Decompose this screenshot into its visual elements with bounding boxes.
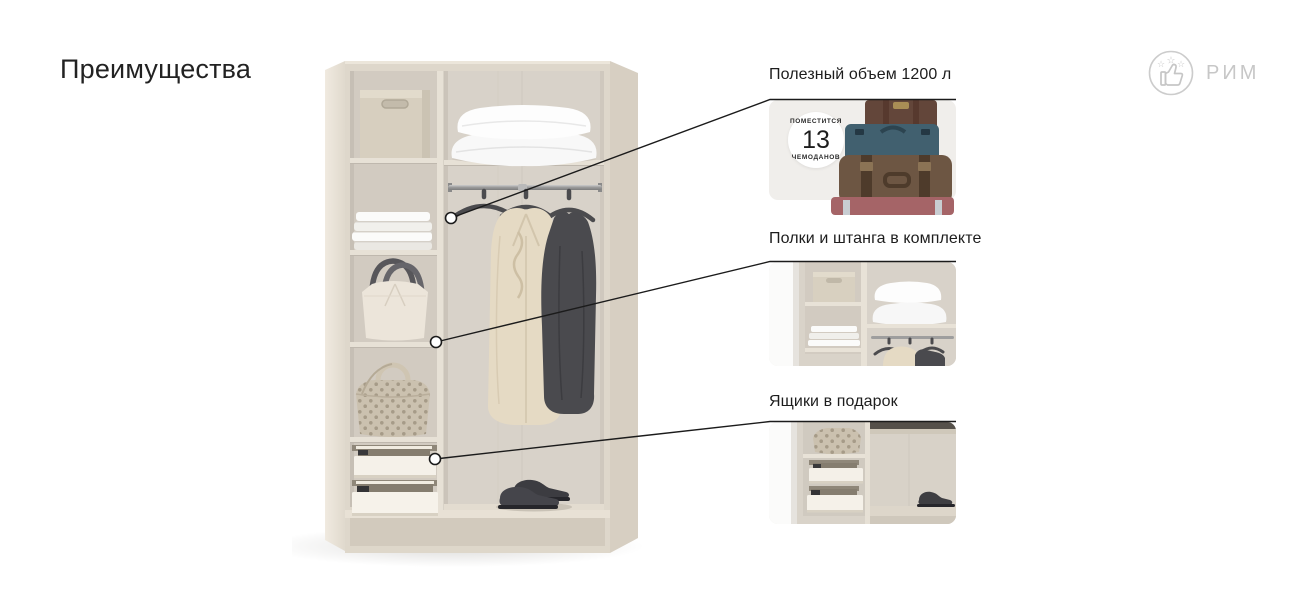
folded-linens bbox=[352, 212, 432, 250]
capacity-badge: ПОМЕСТИТСЯ 13 ЧЕМОДАНОВ bbox=[788, 112, 844, 168]
storage-box bbox=[360, 90, 430, 158]
advantages-page: Преимущества ☆ ☆ ☆ РИМ bbox=[0, 0, 1310, 608]
callout-shelves-rod-label: Полки и штанга в комплекте bbox=[769, 230, 981, 248]
page-title: Преимущества bbox=[60, 54, 251, 85]
capacity-badge-line1: ПОМЕСТИТСЯ bbox=[790, 119, 842, 126]
pillows bbox=[452, 105, 597, 166]
thumbnail-shelves-rod bbox=[769, 262, 956, 366]
open-drawers bbox=[352, 445, 438, 516]
svg-text:☆: ☆ bbox=[1157, 60, 1165, 70]
svg-text:☆: ☆ bbox=[1177, 60, 1185, 70]
callout-leader-lines bbox=[0, 0, 1310, 608]
callout-useful-volume: Полезный объем 1200 л bbox=[769, 66, 951, 84]
thumbnail-drawers bbox=[769, 422, 956, 524]
shelves-rod-illustration bbox=[769, 262, 956, 366]
drawers-illustration bbox=[769, 422, 956, 524]
capacity-badge-number: 13 bbox=[802, 128, 830, 153]
wardrobe-plinth bbox=[345, 510, 610, 553]
callout-useful-volume-label: Полезный объем 1200 л bbox=[769, 66, 951, 84]
callout-drawers-label: Ящики в подарок bbox=[769, 393, 898, 411]
thumbs-up-with-stars-icon: ☆ ☆ ☆ bbox=[1148, 50, 1194, 96]
callout-shelves-rod: Полки и штанга в комплекте bbox=[769, 230, 981, 248]
wardrobe-product-image bbox=[302, 46, 644, 571]
thumbnail-suitcases: ПОМЕСТИТСЯ 13 ЧЕМОДАНОВ bbox=[769, 100, 956, 200]
dark-dress bbox=[541, 212, 596, 414]
callout-drawers: Ящики в подарок bbox=[769, 393, 898, 411]
brand-name: РИМ bbox=[1206, 62, 1259, 85]
brand-logo: ☆ ☆ ☆ РИМ bbox=[1148, 50, 1259, 96]
capacity-badge-line2: ЧЕМОДАНОВ bbox=[792, 155, 840, 162]
